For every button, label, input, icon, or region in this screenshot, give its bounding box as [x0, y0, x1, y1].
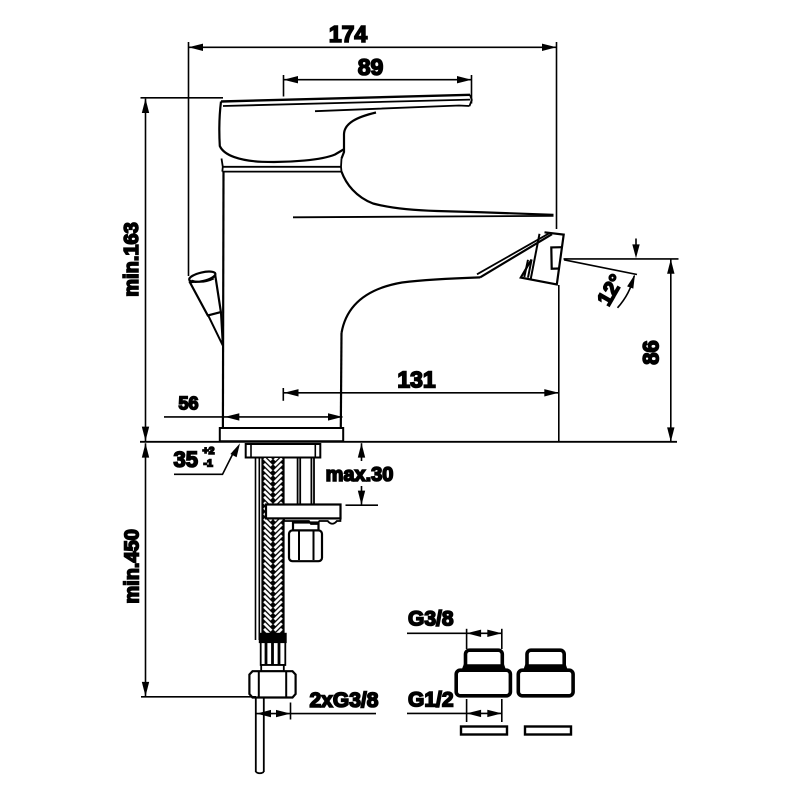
svg-text:2xG3/8: 2xG3/8	[310, 689, 379, 712]
svg-text:G3/8: G3/8	[408, 607, 454, 630]
svg-text:min.163: min.163	[121, 222, 143, 296]
svg-text:89: 89	[358, 54, 384, 80]
svg-text:35: 35	[174, 447, 198, 472]
svg-text:max.30: max.30	[326, 464, 394, 486]
svg-text:131: 131	[397, 367, 436, 393]
svg-text:-1: -1	[204, 458, 213, 470]
svg-text:174: 174	[329, 21, 368, 47]
svg-text:56: 56	[178, 394, 198, 414]
svg-text:min.450: min.450	[122, 529, 144, 603]
svg-text:G1/2: G1/2	[408, 689, 454, 712]
svg-text:+2: +2	[203, 445, 215, 457]
svg-text:86: 86	[639, 340, 664, 364]
